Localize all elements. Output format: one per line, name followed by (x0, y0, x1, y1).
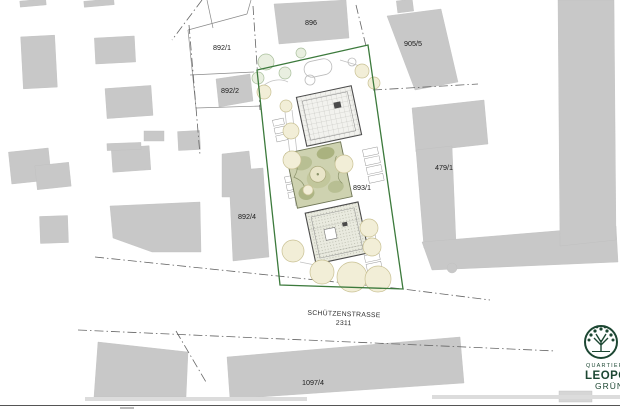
context-building (110, 202, 201, 252)
tree (296, 48, 306, 58)
project-site (252, 45, 403, 292)
site-path (305, 75, 315, 85)
context-building (94, 36, 135, 64)
roof-opening (324, 227, 337, 240)
drawing-frame (0, 395, 620, 409)
building-479-1-east-wing (558, 0, 616, 246)
module-strip-right-upper (362, 147, 384, 183)
context-building (447, 263, 457, 273)
parcel-label-892-2: 892/2 (221, 86, 239, 95)
logo-text-gruen: GRÜN (595, 381, 620, 391)
context-building (40, 216, 69, 244)
frame-mark (120, 407, 134, 409)
parcel-label-905-5: 905/5 (404, 39, 422, 48)
site-building-south (305, 202, 369, 264)
parcel-label-892-1: 892/1 (213, 43, 231, 52)
street-number: 2311 (336, 320, 352, 328)
context-building (20, 0, 46, 7)
frame-bar (85, 397, 307, 401)
boundary-dashdot (172, 0, 202, 40)
context-building (107, 142, 141, 150)
street-label: SCHÜTZENSTRASSE 2311 (307, 309, 381, 329)
building-479-1-west-wing (416, 146, 456, 248)
parcel-line (190, 72, 254, 75)
parcel-line (188, 14, 247, 30)
context-building (178, 130, 201, 150)
context-building (396, 0, 413, 13)
quartier-leopold-gruen-logo: QUARTIER LEOPOLD GRÜN (585, 326, 620, 391)
site-path (348, 58, 356, 66)
building-905-5 (387, 9, 458, 90)
tree (363, 238, 381, 256)
parcel-label-896: 896 (305, 18, 317, 27)
tree (335, 155, 353, 173)
tree (280, 100, 292, 112)
frame-bar (432, 395, 620, 399)
tree (360, 219, 378, 237)
tree (279, 67, 291, 79)
tree (310, 260, 334, 284)
context-building (105, 85, 153, 118)
context-building (94, 342, 188, 397)
parcel-line (247, 0, 251, 14)
site-path (263, 80, 288, 86)
site-plan-drawing: 896 892/1 892/2 905/5 479/1 892/4 893/1 … (0, 0, 620, 410)
parcel-label-892-4: 892/4 (238, 212, 256, 221)
site-building-north (296, 86, 361, 147)
tree (282, 240, 304, 262)
parcel-label-893-1: 893/1 (353, 183, 371, 192)
logo-text-quartier: QUARTIER (586, 363, 620, 369)
street-name: SCHÜTZENSTRASSE (307, 309, 381, 320)
boundary-dashdot (356, 5, 366, 46)
context-building (21, 35, 58, 89)
building-479-1-north-wing (412, 100, 488, 152)
building-1097-4 (227, 337, 464, 399)
context-building (144, 131, 164, 141)
tree (355, 64, 369, 78)
context-building (84, 0, 114, 7)
tree (283, 151, 301, 169)
parcel-label-1097-4: 1097/4 (302, 378, 324, 387)
context-building (35, 162, 71, 189)
parcel-label-479-1: 479/1 (435, 163, 453, 172)
site-plan-page: 896 892/1 892/2 905/5 479/1 892/4 893/1 … (0, 0, 620, 410)
building-892-4 (222, 151, 269, 261)
parcel-line (196, 106, 261, 108)
tree (283, 123, 299, 139)
tree (303, 185, 313, 195)
